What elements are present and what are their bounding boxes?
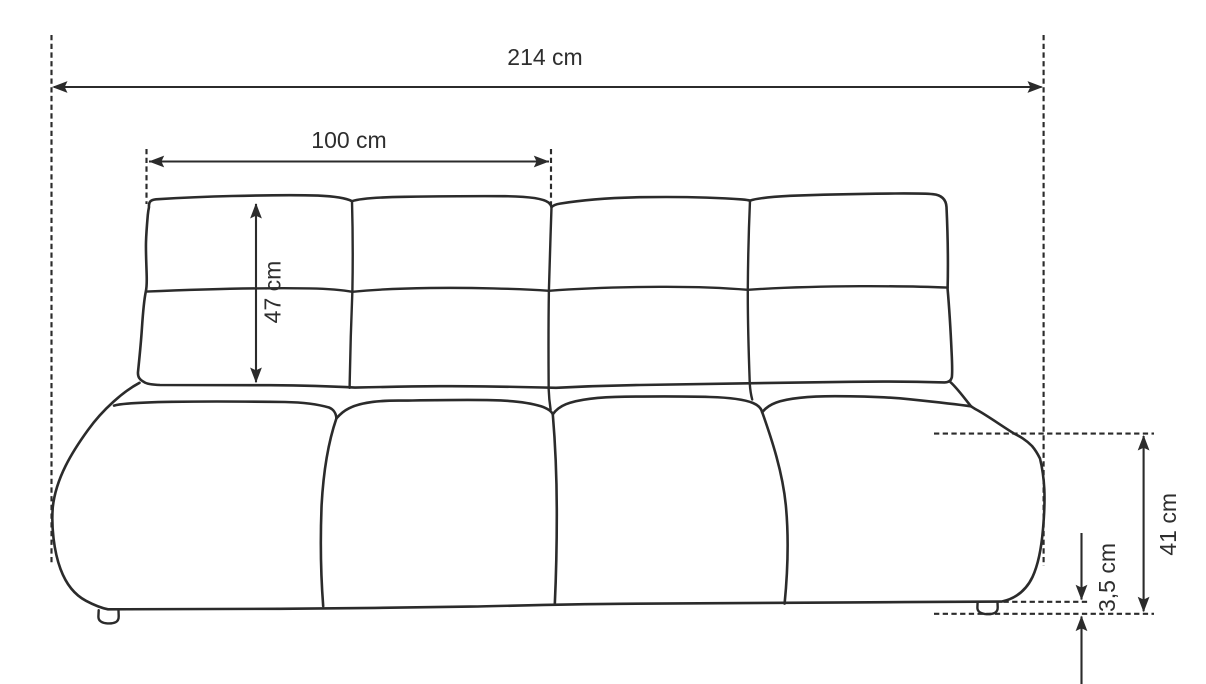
svg-text:100 cm: 100 cm: [311, 127, 386, 153]
svg-text:3,5 cm: 3,5 cm: [1094, 543, 1120, 612]
svg-text:214 cm: 214 cm: [507, 44, 582, 70]
svg-text:41 cm: 41 cm: [1155, 493, 1181, 556]
svg-text:47 cm: 47 cm: [260, 261, 286, 324]
